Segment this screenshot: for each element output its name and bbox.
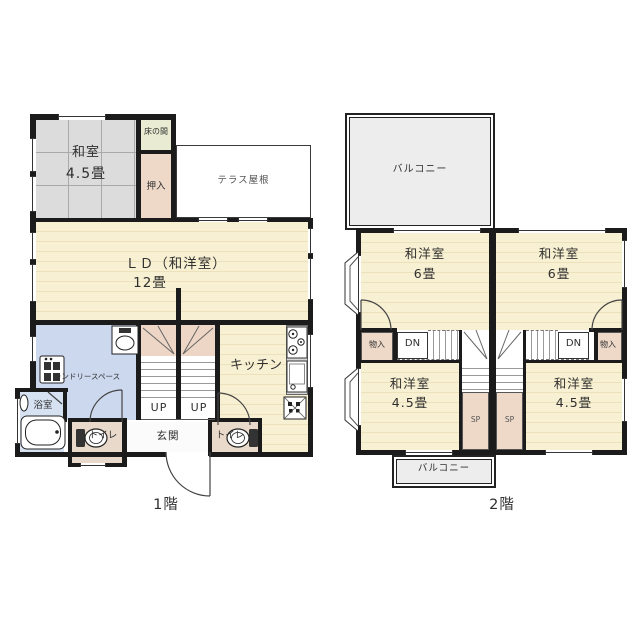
wall-segment <box>459 330 462 450</box>
stair-treads-2f-left <box>462 362 489 392</box>
stair-winder-2f-left <box>462 330 489 362</box>
room-size-west45: 4.5畳 <box>361 396 459 410</box>
stair-winder-1f-left <box>141 325 176 356</box>
wall-segment <box>141 150 171 154</box>
wall-segment <box>15 388 68 392</box>
wall-segment <box>176 288 181 325</box>
floor1-title: 1階 <box>138 497 194 514</box>
room-label-entrance: 玄関 <box>142 430 194 442</box>
window <box>30 232 36 260</box>
storage-left-label: 物入 <box>360 340 394 349</box>
stair-treads-2f-right <box>496 362 523 392</box>
room-label-washitsu: 和室 <box>40 146 132 161</box>
dn-right-label: DN <box>558 338 589 350</box>
room-label-west6: 和洋室 <box>375 247 475 261</box>
balcony-top-label: バルコニー <box>360 164 480 176</box>
wall-segment <box>489 230 496 455</box>
sp-right-label: SP <box>496 416 523 425</box>
stairwell-dashed-line <box>526 359 589 360</box>
room-label-kitchen: キッチン <box>222 359 290 374</box>
wall-segment <box>136 325 141 420</box>
window <box>356 255 361 313</box>
room-size-east45: 4.5畳 <box>526 396 622 410</box>
wall-segment <box>176 325 181 420</box>
wall-segment <box>122 418 127 467</box>
window <box>30 138 36 172</box>
room-size-ld: 12畳 <box>104 276 196 292</box>
wall-segment <box>258 418 262 456</box>
window <box>308 334 313 388</box>
stair-winder-2f-right <box>496 330 523 362</box>
stair-up-label-right: UP <box>184 402 214 415</box>
stair-treads-1f-left <box>141 356 176 400</box>
room-label-toilet-right: トイレ <box>206 431 254 442</box>
stair-treads-1f-right <box>181 356 215 400</box>
stairwell-dashed-line <box>397 359 459 360</box>
wall-segment <box>15 452 166 457</box>
room-label-oshiire: 押入 <box>141 182 171 193</box>
room-size-washitsu: 4.5畳 <box>40 166 132 182</box>
room-label-terrace: テラス屋根 <box>176 176 311 187</box>
room-label-tokonoma: 床の間 <box>139 127 173 136</box>
window <box>308 258 313 300</box>
window <box>30 336 36 362</box>
wall-segment <box>215 325 220 420</box>
room-label-laundry: ランドリースペース <box>38 373 136 382</box>
window <box>545 450 593 455</box>
wall-segment <box>356 360 461 363</box>
wall-segment <box>141 419 215 420</box>
window <box>198 218 228 222</box>
front-door-arc <box>166 452 210 496</box>
window <box>30 176 36 212</box>
room-size-east6: 6畳 <box>509 267 609 281</box>
stair-run-2f-left <box>428 330 459 362</box>
wall-segment <box>68 418 127 422</box>
room-label-ld: ＬＤ（和洋室） <box>86 257 266 273</box>
window <box>30 264 36 302</box>
room-label-east6: 和洋室 <box>509 247 609 261</box>
wall-segment <box>30 320 313 325</box>
window <box>238 218 268 222</box>
stair-winder-1f-right <box>181 325 215 356</box>
balcony-bottom-label: バルコニー <box>392 464 496 475</box>
wall-segment <box>68 418 72 467</box>
room-label-toilet-left: トイレ <box>82 431 124 442</box>
floor2-title: 2階 <box>474 497 530 514</box>
wall-segment <box>526 360 622 363</box>
room-size-west6: 6畳 <box>375 267 475 281</box>
wall-segment <box>208 418 262 422</box>
dn-left-label: DN <box>397 338 428 350</box>
stair-run-2f-right <box>526 330 558 362</box>
window <box>622 240 627 288</box>
wall-segment <box>30 218 313 222</box>
room-label-east45: 和洋室 <box>526 377 622 391</box>
window <box>622 378 627 422</box>
window <box>58 114 106 120</box>
room-label-bath: 浴室 <box>22 401 64 412</box>
window <box>393 228 481 233</box>
storage-right-label: 物入 <box>593 340 623 349</box>
window <box>80 463 106 467</box>
window <box>405 450 453 455</box>
wall-segment <box>356 328 397 332</box>
room-label-west45: 和洋室 <box>361 377 459 391</box>
window <box>308 228 313 254</box>
sp-left-label: SP <box>462 416 489 425</box>
window <box>15 398 20 444</box>
stair-up-label-left: UP <box>144 402 174 415</box>
floor-plan-canvas: 和室 4.5畳 床の間 押入 テラス屋根 ＬＤ（和洋室） 12畳 ランドリースペ… <box>0 0 640 640</box>
window <box>518 228 606 233</box>
